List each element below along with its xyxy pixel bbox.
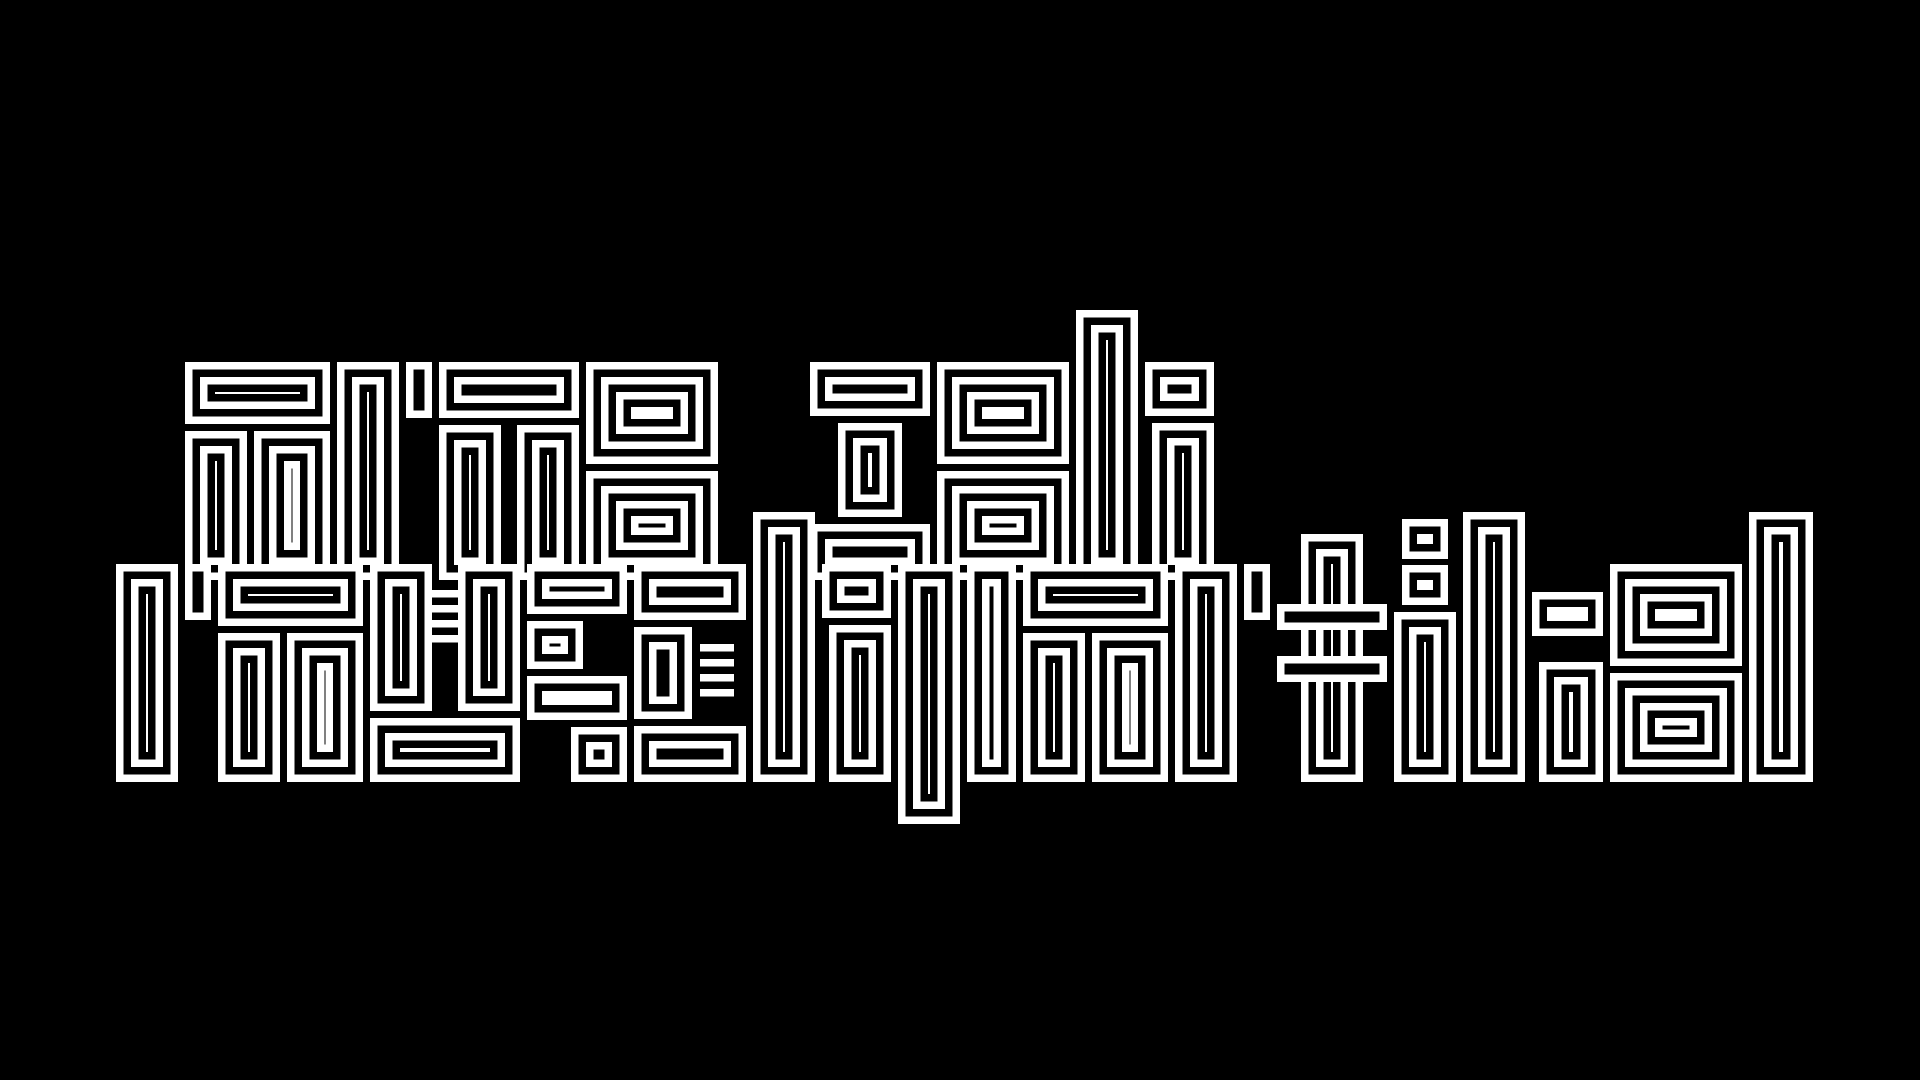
maze-stripe — [462, 385, 557, 396]
maze-glyph-i — [1394, 519, 1456, 782]
maze-stripe — [657, 749, 724, 760]
maze-stripe — [657, 650, 670, 697]
maze-stripe — [1182, 453, 1184, 550]
maze-stripe — [1053, 594, 1138, 596]
maze-stripe — [639, 524, 666, 528]
maze-stripe — [1285, 664, 1380, 675]
maze-stripe — [833, 547, 908, 558]
maze-stripe — [1424, 642, 1426, 752]
maze-stripe — [1417, 580, 1433, 590]
maze-stripe — [631, 407, 673, 419]
maze-stripe — [700, 674, 734, 682]
maze-stripe — [400, 594, 402, 681]
maze-stripe — [1417, 534, 1433, 544]
maze-stripe — [248, 663, 250, 752]
maze-stripe — [414, 370, 425, 411]
maze-stripe — [425, 620, 465, 628]
maze-stripe — [700, 644, 734, 652]
maze-logo-artwork: arne zeh rauschpartikel — [0, 0, 1920, 1080]
maze-stripe — [1663, 726, 1690, 730]
maze-stripe — [1285, 612, 1380, 623]
maze-stripe — [248, 594, 333, 596]
maze-stripe — [215, 461, 217, 550]
maze-stripe — [1569, 692, 1573, 752]
maze-stripe — [425, 635, 465, 643]
maze-stripe — [783, 542, 785, 752]
maze-stripe — [400, 748, 490, 752]
maze-glyph-e — [937, 362, 1069, 580]
maze-stripe — [1655, 609, 1697, 621]
maze-glyph-a — [1023, 564, 1168, 782]
maze-stripe — [845, 587, 869, 596]
maze-stripe — [146, 594, 148, 752]
maze-stripe — [425, 605, 465, 613]
maze-stripe — [1493, 542, 1495, 752]
maze-glyph-l — [1749, 512, 1813, 782]
maze-stripe — [325, 671, 326, 745]
maze-glyph-a — [218, 564, 363, 782]
maze-stripe — [700, 689, 734, 697]
maze-glyph-e — [586, 362, 718, 580]
maze-stripe — [367, 392, 369, 550]
maze-stripe — [469, 455, 471, 550]
maze-stripe — [1053, 663, 1055, 752]
maze-stripe — [990, 587, 994, 760]
maze-stripe — [193, 572, 204, 613]
maze-stripe — [550, 587, 605, 592]
maze-stripe — [542, 691, 612, 705]
maze-stripe — [1547, 607, 1588, 621]
maze-stripe — [833, 385, 908, 394]
artwork-stage: arne zeh rauschpartikel — [0, 0, 1920, 1080]
maze-stripe — [215, 392, 300, 394]
maze-stripe — [1252, 572, 1263, 613]
maze-stripe — [1168, 385, 1192, 394]
maze-glyph-a — [185, 362, 330, 580]
maze-stripe — [550, 644, 561, 647]
maze-stripe — [982, 407, 1024, 419]
maze-stripe — [657, 587, 724, 598]
maze-stripe — [594, 750, 605, 760]
maze-stripe — [990, 524, 1017, 528]
maze-stripe — [1205, 594, 1207, 752]
maze-stripe — [700, 659, 734, 667]
maze-stripe — [868, 453, 872, 487]
maze-stripe — [547, 455, 549, 550]
maze-stripe — [859, 655, 861, 752]
maze-stripe — [928, 594, 930, 794]
maze-stripe — [292, 469, 293, 543]
maze-stripe — [425, 590, 465, 598]
maze-glyph-e — [1610, 564, 1742, 782]
maze-stripe — [488, 594, 490, 681]
maze-stripe — [1130, 671, 1131, 745]
maze-stripe — [1106, 340, 1108, 550]
maze-stripe — [1779, 542, 1783, 752]
